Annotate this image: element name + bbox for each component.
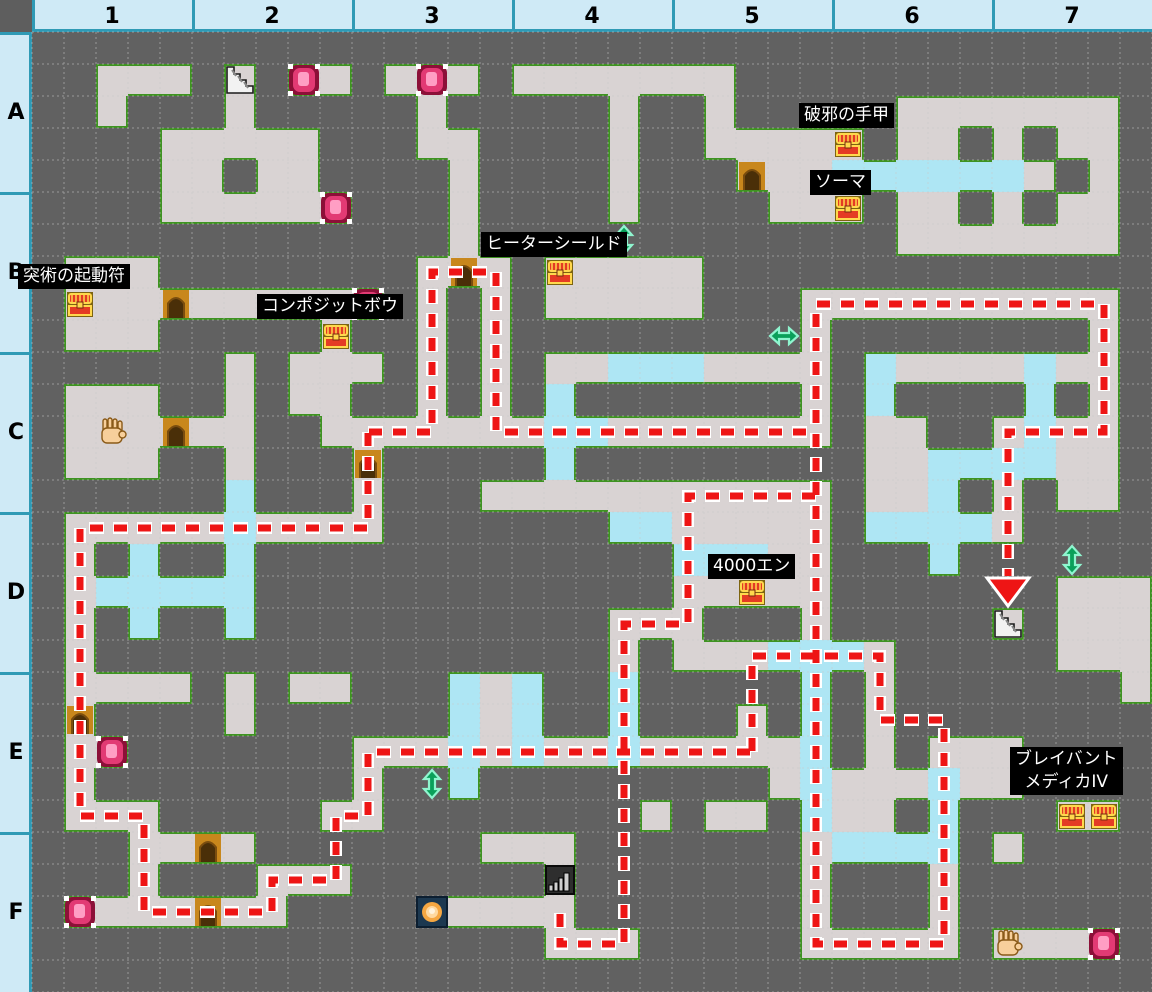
column-header: 1234567	[32, 0, 1152, 32]
floor-tile	[768, 768, 800, 800]
floor-tile	[1056, 576, 1088, 608]
floor-tile	[96, 320, 128, 352]
floor-tile	[480, 480, 512, 512]
water-tile	[1024, 416, 1056, 448]
floor-tile	[992, 288, 1024, 320]
floor-tile	[928, 864, 960, 896]
floor-tile	[160, 672, 192, 704]
floor-tile	[768, 160, 800, 192]
door-icon	[160, 288, 192, 320]
floor-tile	[768, 352, 800, 384]
floor-tile	[352, 416, 384, 448]
floor-tile	[768, 576, 800, 608]
water-tile	[192, 576, 224, 608]
stairs-down-icon	[992, 608, 1024, 640]
floor-tile	[544, 352, 576, 384]
water-tile	[800, 672, 832, 704]
floor-tile	[224, 896, 256, 928]
floor-tile	[128, 384, 160, 416]
water-tile	[960, 512, 992, 544]
floor-tile	[224, 416, 256, 448]
floor-tile	[128, 256, 160, 288]
foe-orb-icon	[320, 192, 352, 224]
floor-tile	[512, 896, 544, 928]
floor-tile	[128, 64, 160, 96]
floor-tile	[928, 928, 960, 960]
item-label: ソーマ	[810, 170, 871, 195]
dungeon-map-screen: 1234567 ABCDEF	[0, 0, 1152, 992]
floor-tile	[704, 416, 736, 448]
item-label: 4000エン	[708, 554, 795, 579]
floor-tile	[64, 512, 96, 544]
header-divider	[0, 352, 32, 355]
floor-tile	[608, 256, 640, 288]
floor-tile	[832, 288, 864, 320]
water-tile	[608, 736, 640, 768]
water-tile	[544, 384, 576, 416]
floor-tile	[160, 512, 192, 544]
floor-tile	[1056, 192, 1088, 224]
floor-tile	[960, 768, 992, 800]
floor-tile	[608, 480, 640, 512]
header-divider	[672, 0, 675, 32]
floor-tile	[288, 192, 320, 224]
floor-tile	[64, 608, 96, 640]
floor-tile	[480, 320, 512, 352]
floor-tile	[800, 576, 832, 608]
row-header: ABCDEF	[0, 32, 32, 992]
floor-tile	[64, 640, 96, 672]
header-divider	[512, 0, 515, 32]
dark-stairs-icon	[544, 864, 576, 896]
floor-tile	[864, 288, 896, 320]
floor-tile	[1024, 288, 1056, 320]
water-tile	[544, 416, 576, 448]
floor-tile	[288, 512, 320, 544]
floor-tile	[1056, 128, 1088, 160]
floor-tile	[1056, 448, 1088, 480]
header-divider	[0, 192, 32, 195]
floor-tile	[416, 352, 448, 384]
header-divider	[0, 512, 32, 515]
floor-tile	[928, 192, 960, 224]
water-tile	[896, 832, 928, 864]
floor-tile	[288, 672, 320, 704]
floor-tile	[544, 288, 576, 320]
floor-tile	[640, 736, 672, 768]
floor-tile	[704, 64, 736, 96]
floor-tile	[352, 768, 384, 800]
floor-tile	[448, 224, 480, 256]
floor-tile	[416, 736, 448, 768]
water-tile	[224, 544, 256, 576]
floor-tile	[128, 320, 160, 352]
floor-tile	[64, 384, 96, 416]
floor-tile	[896, 448, 928, 480]
foe-orb-icon	[416, 64, 448, 96]
floor-tile	[896, 768, 928, 800]
header-divider	[992, 0, 995, 32]
floor-tile	[480, 736, 512, 768]
water-tile	[992, 448, 1024, 480]
water-tile	[864, 832, 896, 864]
floor-tile	[608, 288, 640, 320]
water-tile	[576, 416, 608, 448]
floor-tile	[288, 160, 320, 192]
floor-tile	[352, 736, 384, 768]
water-tile	[960, 448, 992, 480]
floor-tile	[288, 384, 320, 416]
floor-tile	[544, 928, 576, 960]
water-tile	[1024, 352, 1056, 384]
foe-orb-icon	[1088, 928, 1120, 960]
door-icon	[160, 416, 192, 448]
floor-tile	[224, 704, 256, 736]
floor-tile	[416, 288, 448, 320]
floor-tile	[672, 256, 704, 288]
water-tile	[448, 736, 480, 768]
water-tile	[640, 352, 672, 384]
floor-tile	[896, 96, 928, 128]
treasure-chest-icon	[64, 288, 96, 320]
water-tile	[128, 544, 160, 576]
floor-tile	[704, 640, 736, 672]
floor-tile	[224, 96, 256, 128]
floor-tile	[320, 672, 352, 704]
row-header-cell: D	[0, 512, 32, 672]
floor-tile	[576, 736, 608, 768]
floor-tile	[416, 96, 448, 128]
floor-tile	[992, 480, 1024, 512]
floor-tile	[864, 736, 896, 768]
water-tile	[864, 512, 896, 544]
floor-tile	[832, 800, 864, 832]
floor-tile	[704, 480, 736, 512]
floor-tile	[480, 672, 512, 704]
floor-tile	[96, 512, 128, 544]
column-header-cell: 5	[672, 0, 832, 32]
floor-tile	[192, 128, 224, 160]
floor-tile	[928, 288, 960, 320]
floor-tile	[1024, 928, 1056, 960]
floor-tile	[1088, 608, 1120, 640]
floor-tile	[224, 288, 256, 320]
floor-tile	[480, 352, 512, 384]
floor-tile	[864, 704, 896, 736]
water-tile	[928, 448, 960, 480]
floor-tile	[736, 800, 768, 832]
floor-tile	[1088, 640, 1120, 672]
floor-tile	[1088, 192, 1120, 224]
water-tile	[224, 608, 256, 640]
stairs-up-icon	[224, 64, 256, 96]
water-tile	[672, 544, 704, 576]
door-icon	[192, 832, 224, 864]
floor-tile	[416, 256, 448, 288]
floor-tile	[224, 128, 256, 160]
floor-tile	[800, 416, 832, 448]
gather-hand-icon	[992, 928, 1024, 960]
floor-tile	[512, 832, 544, 864]
floor-tile	[416, 320, 448, 352]
floor-tile	[448, 192, 480, 224]
floor-tile	[128, 672, 160, 704]
floor-tile	[192, 288, 224, 320]
floor-tile	[992, 352, 1024, 384]
floor-tile	[1088, 384, 1120, 416]
floor-tile	[256, 896, 288, 928]
door-icon	[448, 256, 480, 288]
water-tile	[608, 704, 640, 736]
floor-tile	[64, 448, 96, 480]
water-tile	[928, 512, 960, 544]
gather-hand-icon	[96, 416, 128, 448]
door-icon	[192, 896, 224, 928]
floor-tile	[704, 512, 736, 544]
floor-tile	[1024, 224, 1056, 256]
floor-tile	[64, 544, 96, 576]
floor-tile	[672, 480, 704, 512]
floor-tile	[800, 832, 832, 864]
floor-tile	[608, 160, 640, 192]
floor-tile	[544, 64, 576, 96]
floor-tile	[768, 128, 800, 160]
floor-tile	[224, 352, 256, 384]
floor-tile	[160, 128, 192, 160]
treasure-chest-icon	[736, 576, 768, 608]
water-tile	[512, 704, 544, 736]
floor-tile	[672, 608, 704, 640]
shortcut-arrow-icon	[1056, 544, 1088, 576]
floor-tile	[704, 128, 736, 160]
floor-tile	[192, 416, 224, 448]
foe-orb-icon	[96, 736, 128, 768]
water-tile	[448, 704, 480, 736]
floor-tile	[384, 736, 416, 768]
floor-tile	[704, 96, 736, 128]
floor-tile	[928, 224, 960, 256]
floor-tile	[224, 384, 256, 416]
floor-tile	[672, 64, 704, 96]
floor-tile	[928, 736, 960, 768]
floor-tile	[576, 480, 608, 512]
floor-tile	[448, 416, 480, 448]
water-tile	[928, 800, 960, 832]
door-icon	[64, 704, 96, 736]
floor-tile	[864, 928, 896, 960]
floor-tile	[320, 384, 352, 416]
floor-tile	[608, 928, 640, 960]
floor-tile	[96, 448, 128, 480]
floor-tile	[192, 512, 224, 544]
floor-tile	[1120, 672, 1152, 704]
water-tile	[928, 768, 960, 800]
floor-tile	[352, 800, 384, 832]
floor-tile	[448, 160, 480, 192]
column-header-cell: 1	[32, 0, 192, 32]
floor-tile	[1056, 288, 1088, 320]
floor-tile	[384, 64, 416, 96]
floor-tile	[352, 352, 384, 384]
floor-tile	[64, 736, 96, 768]
floor-tile	[896, 928, 928, 960]
floor-tile	[256, 864, 288, 896]
floor-tile	[480, 416, 512, 448]
floor-tile	[608, 96, 640, 128]
floor-tile	[960, 352, 992, 384]
floor-tile	[576, 64, 608, 96]
floor-tile	[256, 160, 288, 192]
water-tile	[96, 576, 128, 608]
floor-tile	[800, 288, 832, 320]
water-tile	[128, 576, 160, 608]
water-tile	[896, 160, 928, 192]
floor-tile	[1088, 96, 1120, 128]
water-tile	[992, 160, 1024, 192]
header-divider	[352, 0, 355, 32]
floor-tile	[672, 512, 704, 544]
water-tile	[608, 352, 640, 384]
floor-tile	[608, 64, 640, 96]
header-divider	[192, 0, 195, 32]
floor-tile	[448, 128, 480, 160]
floor-tile	[896, 288, 928, 320]
floor-tile	[352, 480, 384, 512]
floor-tile	[736, 736, 768, 768]
floor-tile	[192, 160, 224, 192]
floor-tile	[224, 448, 256, 480]
floor-tile	[64, 320, 96, 352]
floor-tile	[1088, 128, 1120, 160]
floor-tile	[960, 288, 992, 320]
floor-tile	[1088, 576, 1120, 608]
floor-tile	[288, 128, 320, 160]
floor-tile	[64, 800, 96, 832]
floor-tile	[640, 256, 672, 288]
floor-tile	[736, 480, 768, 512]
floor-tile	[608, 640, 640, 672]
foe-orb-icon	[64, 896, 96, 928]
floor-tile	[128, 448, 160, 480]
floor-tile	[608, 416, 640, 448]
floor-tile	[128, 416, 160, 448]
floor-tile	[576, 352, 608, 384]
floor-tile	[160, 64, 192, 96]
row-header-cell: A	[0, 32, 32, 192]
floor-tile	[672, 576, 704, 608]
floor-tile	[992, 96, 1024, 128]
floor-tile	[960, 224, 992, 256]
floor-tile	[416, 384, 448, 416]
floor-tile	[800, 352, 832, 384]
floor-tile	[1088, 352, 1120, 384]
floor-tile	[800, 128, 832, 160]
floor-tile	[544, 832, 576, 864]
water-tile	[448, 768, 480, 800]
floor-tile	[576, 256, 608, 288]
water-tile	[832, 832, 864, 864]
floor-tile	[1088, 320, 1120, 352]
floor-tile	[864, 640, 896, 672]
floor-tile	[928, 128, 960, 160]
floor-tile	[1056, 352, 1088, 384]
floor-tile	[800, 512, 832, 544]
header-divider	[32, 0, 35, 32]
floor-tile	[1056, 928, 1088, 960]
floor-tile	[800, 480, 832, 512]
floor-tile	[800, 320, 832, 352]
floor-tile	[704, 800, 736, 832]
floor-tile	[512, 64, 544, 96]
floor-tile	[736, 640, 768, 672]
header-divider	[0, 672, 32, 675]
floor-tile	[160, 192, 192, 224]
floor-tile	[768, 512, 800, 544]
row-header-cell: E	[0, 672, 32, 832]
floor-tile	[1088, 160, 1120, 192]
floor-tile	[1056, 96, 1088, 128]
floor-tile	[992, 832, 1024, 864]
water-tile	[128, 608, 160, 640]
door-icon	[352, 448, 384, 480]
floor-tile	[1088, 480, 1120, 512]
water-tile	[800, 768, 832, 800]
door-icon	[736, 160, 768, 192]
floor-tile	[192, 192, 224, 224]
floor-tile	[1120, 576, 1152, 608]
floor-tile	[224, 192, 256, 224]
water-tile	[640, 512, 672, 544]
treasure-chest-icon	[1088, 800, 1120, 832]
floor-tile	[544, 480, 576, 512]
floor-tile	[928, 352, 960, 384]
floor-tile	[608, 128, 640, 160]
floor-tile	[1088, 416, 1120, 448]
floor-tile	[864, 416, 896, 448]
floor-tile	[480, 832, 512, 864]
floor-tile	[160, 896, 192, 928]
shortcut-arrow-icon	[768, 320, 800, 352]
water-tile	[512, 736, 544, 768]
floor-tile	[160, 832, 192, 864]
floor-tile	[768, 736, 800, 768]
floor-tile	[320, 512, 352, 544]
water-tile	[800, 640, 832, 672]
floor-tile	[800, 544, 832, 576]
floor-tile	[992, 224, 1024, 256]
header-divider	[832, 0, 835, 32]
floor-tile	[704, 352, 736, 384]
water-tile	[928, 832, 960, 864]
floor-tile	[1056, 416, 1088, 448]
floor-tile	[768, 192, 800, 224]
water-tile	[800, 736, 832, 768]
floor-tile	[128, 800, 160, 832]
map-corner	[0, 0, 32, 32]
floor-tile	[704, 736, 736, 768]
floor-tile	[992, 128, 1024, 160]
item-label: コンポジットボウ	[257, 294, 403, 319]
floor-tile	[1056, 224, 1088, 256]
floor-tile	[1120, 608, 1152, 640]
floor-tile	[928, 96, 960, 128]
floor-tile	[896, 224, 928, 256]
water-tile	[896, 512, 928, 544]
water-tile	[448, 672, 480, 704]
floor-tile	[64, 576, 96, 608]
floor-tile	[896, 128, 928, 160]
floor-tile	[96, 800, 128, 832]
